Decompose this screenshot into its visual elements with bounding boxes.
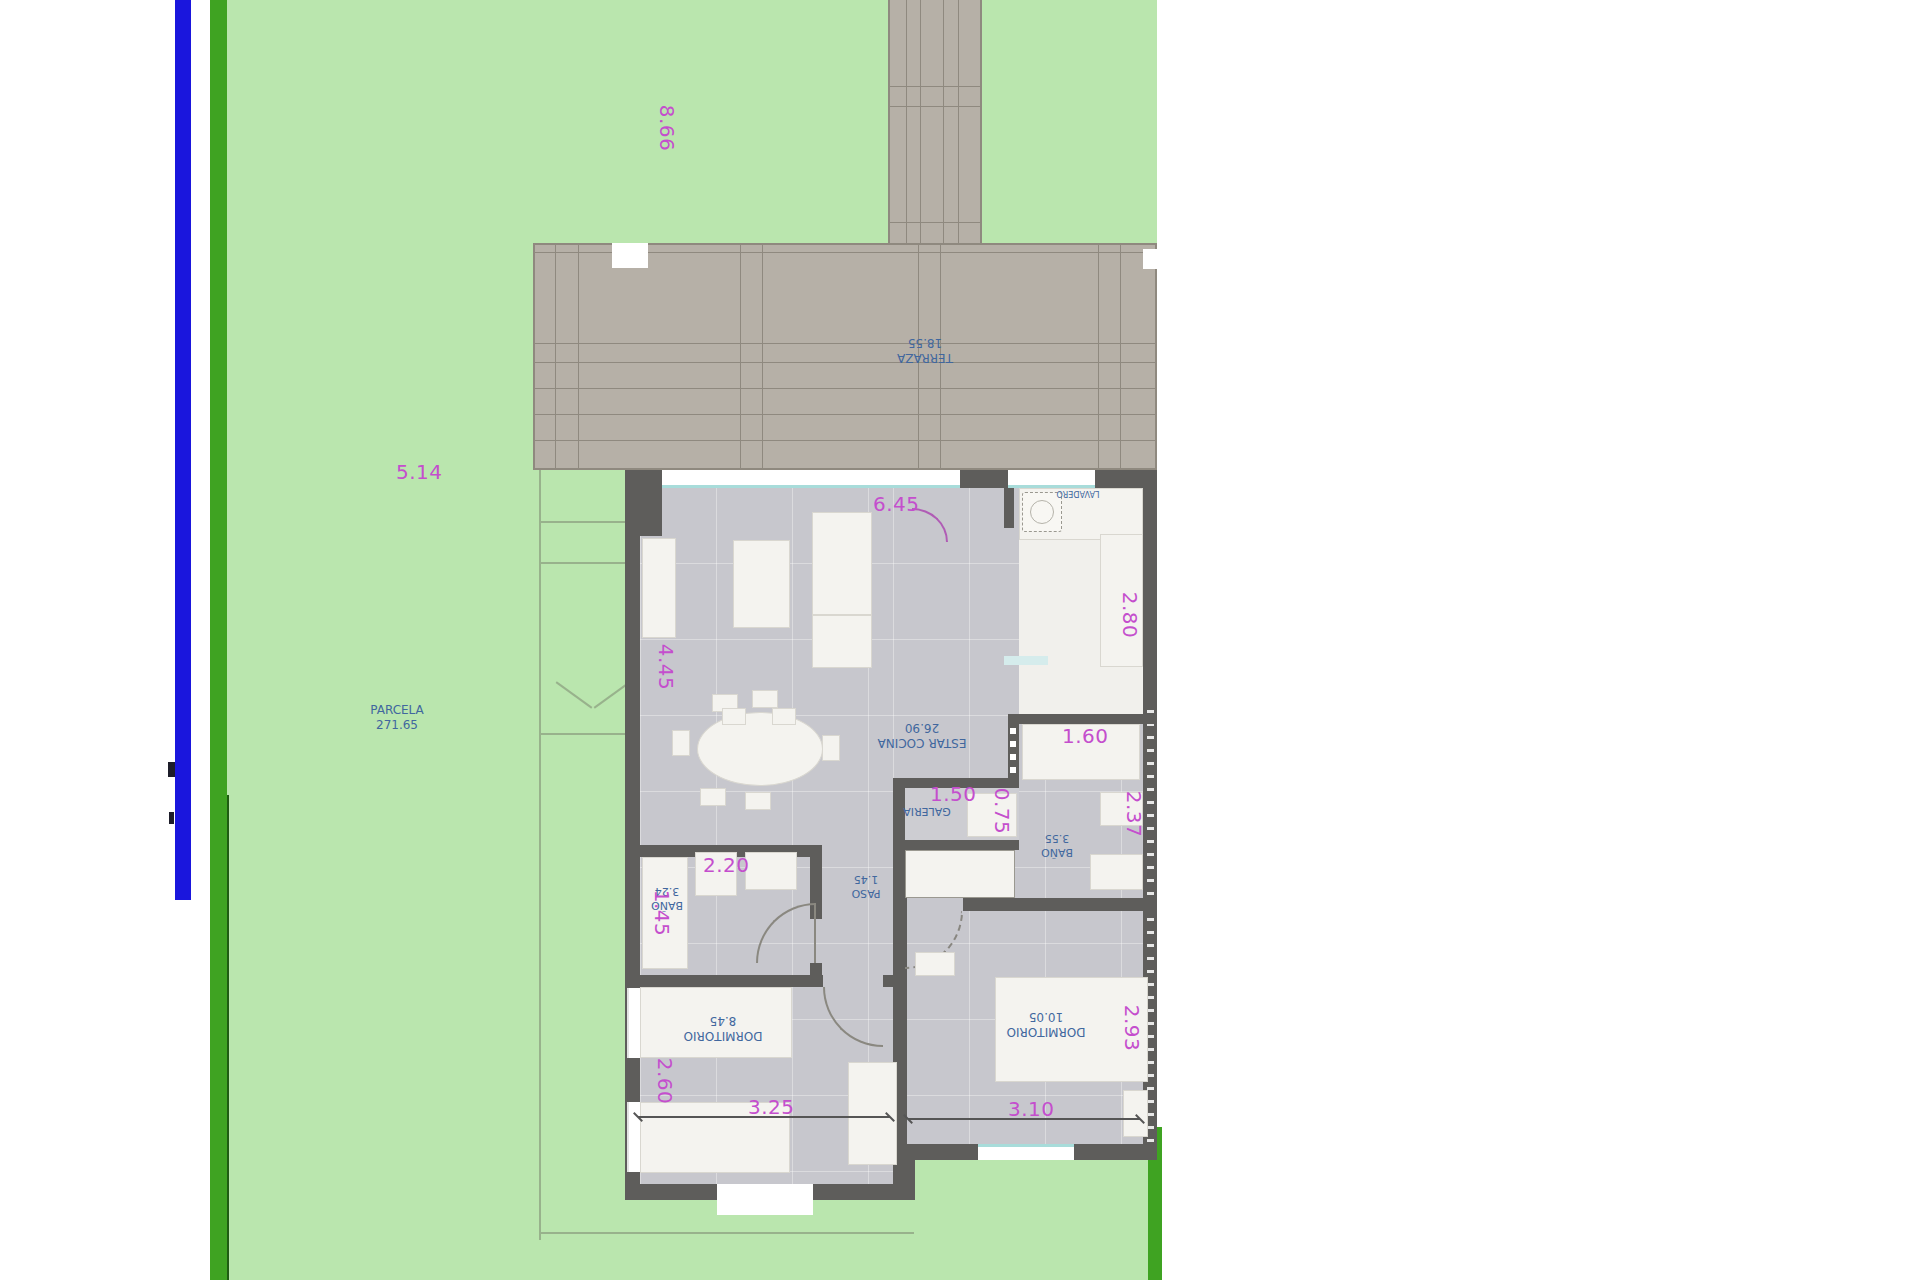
side-table [733,540,790,628]
parcel-area: 271.65 [347,718,447,733]
terrace-joint-v3 [740,243,741,470]
bedroom2-label: DORMITORIO 10.05 [986,1009,1106,1039]
terrace-joint-h3 [533,388,1157,389]
stool-1 [722,708,746,725]
stool-2 [772,708,796,725]
walkway-joint-h1 [888,86,982,87]
parcel-name: PARCELA [347,703,447,718]
dim-galeria-depth: 0.75 [991,785,1013,837]
doorstep-bedroom1 [717,1200,813,1215]
sofa-right-upper [812,512,872,615]
dining-chair-3 [700,788,726,806]
hinge-dot-3 [1010,754,1016,760]
wardrobe-bedroom1 [848,1062,897,1165]
floor-plan-canvas: 8.66 5.14 PARCELA 271.65 TERRAZA 18.55 [0,0,1920,1280]
wall-bath-right-left [1008,714,1019,788]
dim-bath-right-width: 1.60 [1062,724,1109,748]
window-bottom-bedroom2 [978,1144,1074,1160]
bath-right-area: 3.55 [1017,831,1097,845]
dim-bedroom1-height: 2.60 [654,1055,676,1107]
bath-right-label: BAÑO 3.55 [1017,831,1097,859]
terrace-area: 18.55 [875,335,975,350]
dining-chair-2 [752,690,778,708]
dim-estar-height: 4.45 [655,641,677,693]
dining-chair-6 [822,735,840,761]
bedroom2-name: DORMITORIO [986,1024,1106,1039]
dim-bath-right-height: 2.37 [1123,788,1145,840]
dim-bedroom2-height: 2.93 [1121,1002,1143,1054]
wall-kitchen-laundry-stub [1004,488,1014,528]
terrace-joint-h5 [533,440,1157,441]
wall-left [625,470,640,1200]
terrace-label: TERRAZA 18.55 [875,335,975,365]
survey-mark-2 [169,812,174,824]
terrace-name: TERRAZA [875,350,975,365]
bedroom1-name: DORMITORIO [663,1028,783,1043]
living-kitchen-label: ESTAR COCINA 26.90 [852,720,992,750]
bath-right-name: BAÑO [1017,845,1097,859]
parcel-label: PARCELA 271.65 [347,703,447,733]
laundry-name: LAVADERO [1043,488,1113,498]
walkway-joint-h3 [888,222,982,223]
walkway-joint-v4 [958,0,959,243]
dim-kitchen-counter: 2.80 [1119,589,1141,641]
survey-mark-1 [168,762,175,777]
walkway-joint-v3 [943,0,944,243]
walkway-joint-v2 [920,0,921,243]
bedroom1-label: DORMITORIO 8.45 [663,1013,783,1043]
terrace-joint-v8 [1120,243,1121,470]
garden-line-bottom [539,1232,914,1234]
window-bottom-bedroom1 [717,1184,813,1200]
door-leaf-bath-left [814,903,816,963]
parcel-boundary-edge-line [227,795,229,1280]
dim-bedroom1-width: 3.25 [748,1095,795,1119]
galeria-label: GALERIA [896,804,958,818]
galeria-name: GALERIA [896,804,958,818]
window-top-laundry [1008,470,1095,488]
living-kitchen-name: ESTAR COCINA [852,735,992,750]
dim-estar-width: 6.45 [873,492,920,516]
bedroom1-area: 8.45 [663,1013,783,1028]
wall-bath-right-top [1008,714,1157,724]
hall-label: PASO 1.45 [826,872,906,900]
garden-line-bed-2 [539,562,627,564]
parcel-depth-dimension: 8.66 [656,102,678,154]
sink-right-bath [1090,854,1143,890]
hinge-dot-4 [1010,767,1016,773]
terrace-joint-v2 [578,243,579,470]
terrace [533,243,1157,470]
window-left-bedroom-1 [627,988,641,1058]
washing-machine-drum-icon [1030,500,1054,524]
sofa-left [642,538,676,638]
nightstand-bedroom2 [915,952,955,976]
bidet-left-bath [745,852,797,890]
bedroom2-area: 10.05 [986,1009,1106,1024]
terrace-notch-right [1143,249,1165,269]
hinge-dot-1 [1010,728,1016,734]
wall-bedroom1-top [625,975,823,987]
garden-line-bed-1 [539,521,627,523]
terrace-joint-h1 [533,343,1157,344]
garden-line-mid [539,733,627,735]
terrace-joint-h4 [533,414,1157,415]
wall-galeria-bottom [893,840,1019,850]
dining-table [697,712,823,786]
dining-chair-5 [672,730,690,756]
wall-bedroom2-top-right [963,898,1157,911]
parcel-boundary-green-left [210,0,227,1280]
dim-bedroom2-width: 3.10 [1008,1097,1055,1121]
closet-bedroom2 [905,850,1015,898]
laundry-label: LAVADERO [1043,488,1113,498]
hall-name: PASO [826,886,906,900]
sofa-right-lower [812,615,872,668]
terrace-joint-h2 [533,362,1157,363]
terrace-joint-v7 [1098,243,1099,470]
terrace-joint-v1 [555,243,556,470]
dining-chair-4 [745,792,771,810]
wall-right-insulation-hatch [1147,700,1154,1144]
terrace-joint-v4 [762,243,763,470]
hall-area: 1.45 [826,872,906,886]
dim-bath-left-height: 1.45 [651,887,673,939]
walkway [888,0,982,243]
terrace-notch-left [612,243,648,268]
parcel-boundary-blue [175,0,191,900]
hinge-dot-2 [1010,741,1016,747]
walkway-joint-h2 [888,106,982,107]
dim-bath-left-width: 2.20 [703,853,750,877]
dim-galeria-width: 1.50 [930,782,977,806]
wall-bedroom1-top-stub [883,975,907,987]
living-kitchen-area: 26.90 [852,720,992,735]
window-top-living [662,470,960,488]
garden-line-vertical [539,470,541,1240]
parcel-front-dimension: 5.14 [396,460,443,484]
kitchen-sink-mark [1004,656,1048,665]
walkway-joint-v1 [906,0,907,243]
